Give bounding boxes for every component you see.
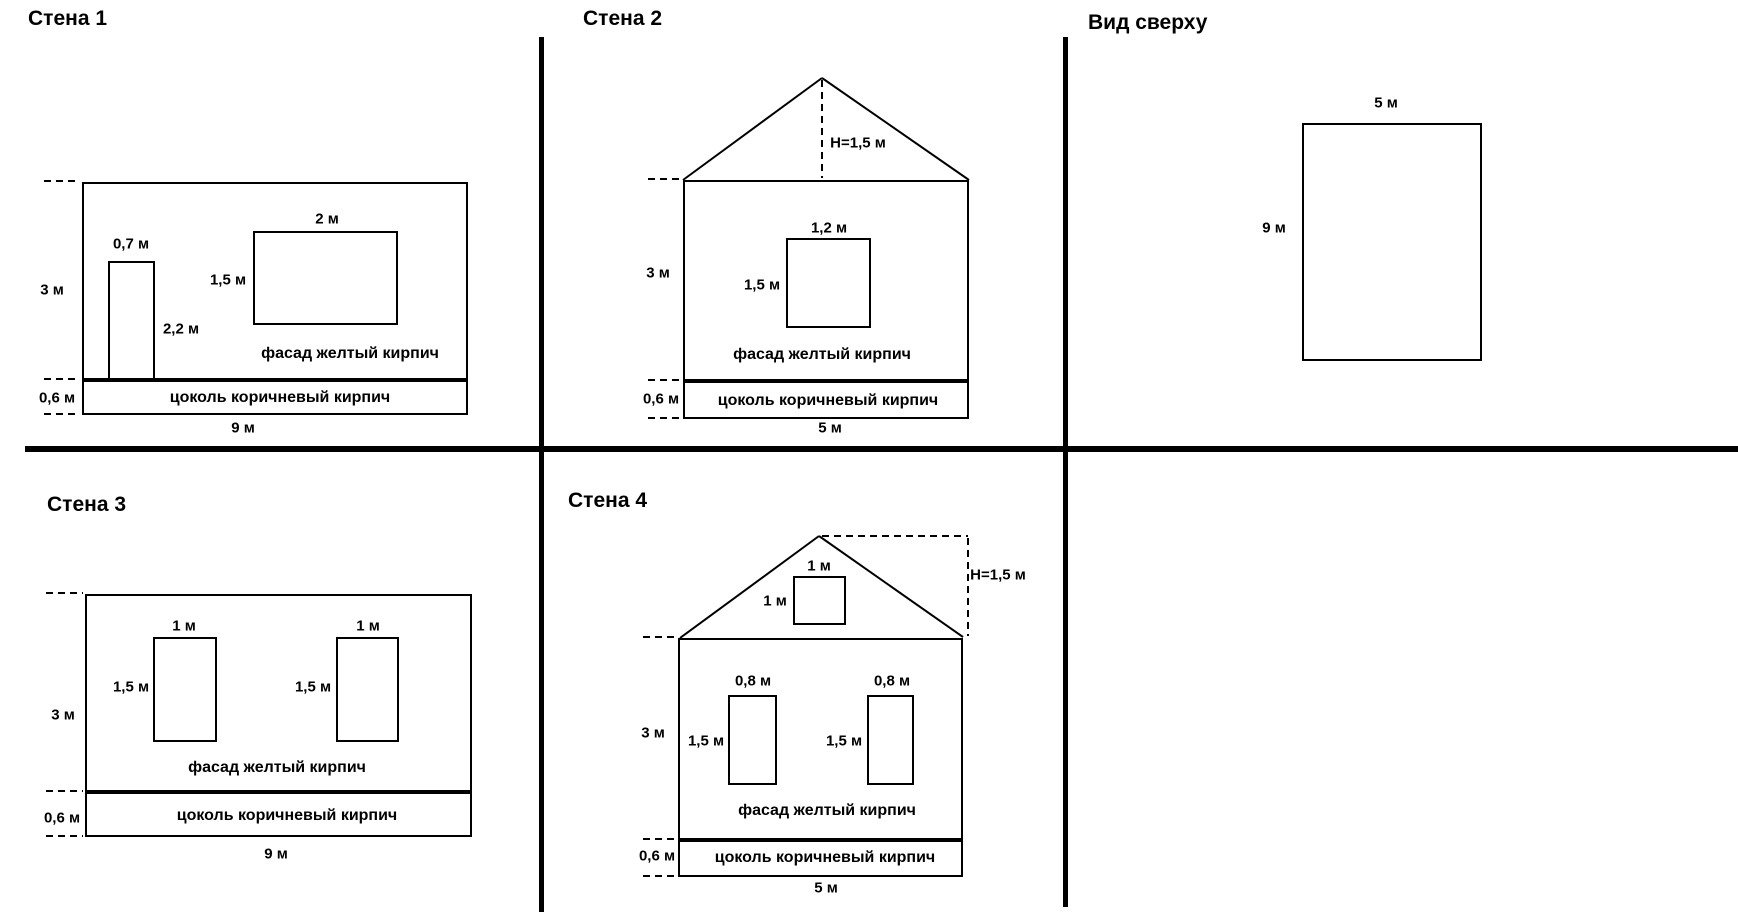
horizontal-divider [25,446,1738,452]
wall2-width-label: 5 м [818,421,842,436]
wall4-width-label: 5 м [814,881,838,896]
wall3-width-label: 9 м [264,847,288,862]
wall1-plinth-label: цоколь коричневый кирпич [170,390,390,406]
wall4-roof-height-label: H=1,5 м [970,568,1026,583]
wall2-roof-right-line [822,78,969,180]
wall4-window-1 [728,695,777,785]
wall3-plinth-height-label: 0,6 м [44,811,80,826]
wall3-window-1 [153,637,217,742]
wall3-plinth-label: цоколь коричневый кирпич [177,808,397,824]
wall2-roof-height-label: H=1,5 м [830,136,886,151]
wall4-height-label: 3 м [641,726,665,741]
wall4-plinth-height-label: 0,6 м [639,849,675,864]
wall2-plinth-label: цоколь коричневый кирпич [718,393,938,409]
wall2-roof-left-line [683,78,822,180]
wall2-facade-label: фасад желтый кирпич [733,347,911,363]
wall4-attic-window-height-label: 1 м [763,594,787,609]
drawing-canvas: Стена 1 0,7 м 2,2 м 2 м 1,5 м 3 м фасад … [0,0,1738,912]
wall4-attic-window-width-label: 1 м [807,559,831,574]
wall4-window1-height-label: 1,5 м [688,734,724,749]
wall1-plinth-height-label: 0,6 м [39,391,75,406]
wall3-window1-height-label: 1,5 м [113,680,149,695]
top-view-title: Вид сверху [1088,12,1207,33]
wall4-window2-width-label: 0,8 м [874,674,910,689]
wall2-height-label: 3 м [646,266,670,281]
wall4-title: Стена 4 [568,490,647,511]
wall3-facade-label: фасад желтый кирпич [188,760,366,776]
wall3-window2-width-label: 1 м [356,619,380,634]
vertical-divider-1 [539,37,544,912]
wall2-window [786,238,871,328]
wall3-window1-width-label: 1 м [172,619,196,634]
top-view-depth-label: 9 м [1262,221,1286,236]
wall1-window [253,231,398,325]
wall4-window2-height-label: 1,5 м [826,734,862,749]
wall3-window-2 [336,637,399,742]
wall2-window-height-label: 1,5 м [744,278,780,293]
wall4-attic-window [793,576,846,625]
wall2-window-width-label: 1,2 м [811,221,847,236]
vertical-divider-2 [1063,37,1068,907]
wall2-title: Стена 2 [583,8,662,29]
wall1-door-height-label: 2,2 м [163,322,199,337]
wall1-door-width-label: 0,7 м [113,237,149,252]
wall1-facade-label: фасад желтый кирпич [261,346,439,362]
wall4-window-2 [867,695,914,785]
wall1-height-label: 3 м [40,283,64,298]
top-view-width-label: 5 м [1374,96,1398,111]
wall4-plinth-label: цоколь коричневый кирпич [715,850,935,866]
wall2-plinth-height-label: 0,6 м [643,392,679,407]
wall3-title: Стена 3 [47,494,126,515]
wall4-facade-label: фасад желтый кирпич [738,803,916,819]
wall1-window-width-label: 2 м [315,212,339,227]
wall1-window-height-label: 1,5 м [210,273,246,288]
wall3-window2-height-label: 1,5 м [295,680,331,695]
wall3-height-label: 3 м [51,708,75,723]
top-view-outline [1302,123,1482,361]
wall4-window1-width-label: 0,8 м [735,674,771,689]
wall1-title: Стена 1 [28,8,107,29]
wall1-door [108,261,155,380]
wall1-width-label: 9 м [231,421,255,436]
